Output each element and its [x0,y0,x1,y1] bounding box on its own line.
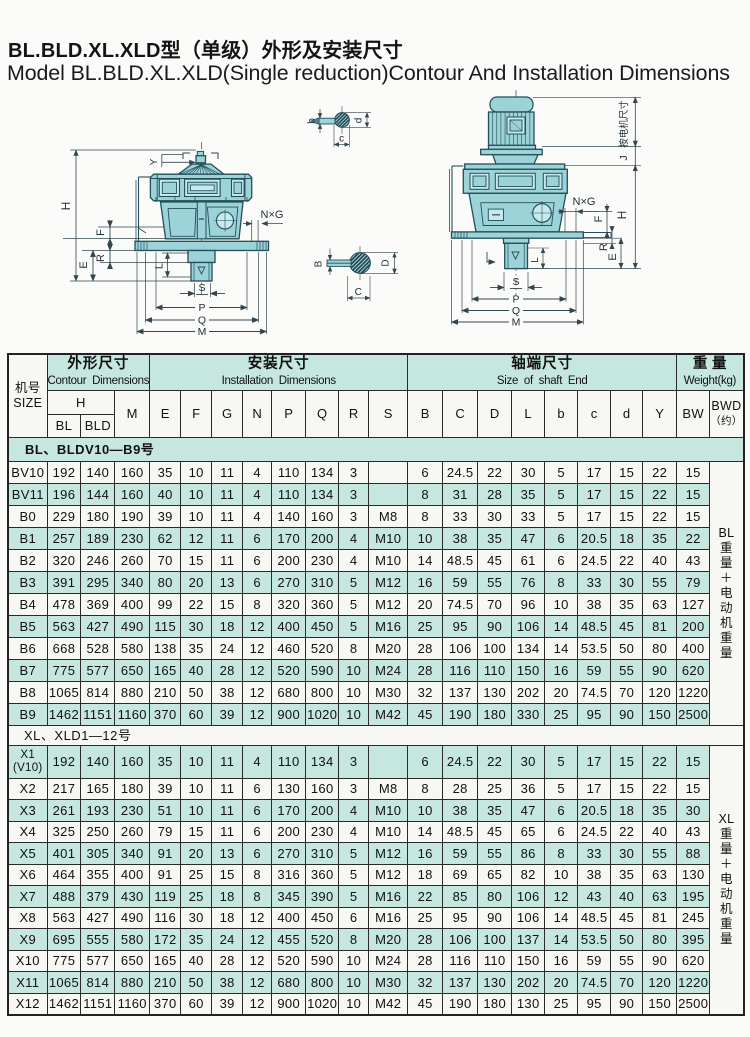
svg-text:C: C [355,287,362,298]
svg-text:N×G: N×G [261,209,284,221]
svg-text:H: H [59,202,73,211]
svg-text:L: L [530,257,541,263]
svg-text:P: P [512,294,519,306]
svg-text:P: P [198,302,205,314]
svg-text:M: M [198,326,207,338]
svg-text:M: M [512,317,521,329]
svg-text:E: E [607,253,619,260]
svg-text:J: J [618,155,630,160]
svg-text:c: c [339,134,344,145]
svg-text:F: F [593,215,605,222]
svg-text:按电机尺寸: 按电机尺寸 [618,100,630,148]
svg-text:H: H [615,211,629,220]
svg-text:R: R [95,254,107,262]
svg-text:Q: Q [198,315,206,327]
svg-text:Y: Y [149,158,160,165]
svg-text:R: R [598,243,610,251]
svg-text:B: B [314,260,325,267]
svg-text:S: S [198,282,205,294]
svg-text:S: S [512,276,519,288]
svg-text:b: b [307,118,318,124]
svg-text:F: F [95,229,107,236]
svg-text:D: D [381,259,392,266]
svg-text:L: L [154,263,166,269]
svg-text:E: E [78,261,90,268]
svg-text:Q: Q [512,305,520,317]
svg-text:N×G: N×G [573,196,596,208]
svg-text:d: d [354,118,365,124]
